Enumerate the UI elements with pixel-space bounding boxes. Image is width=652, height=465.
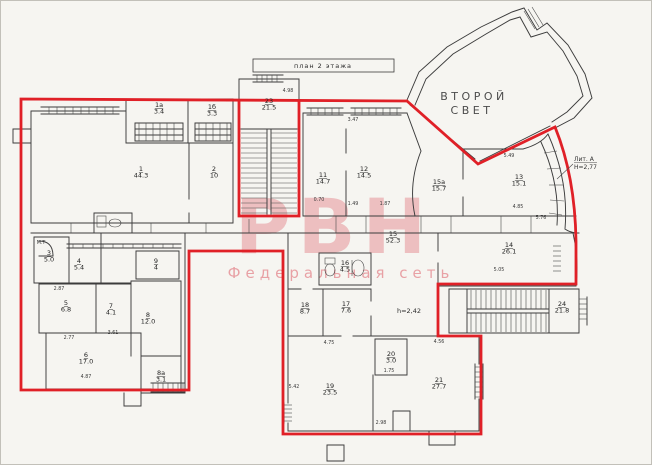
dimension-label: 1.75 <box>384 368 395 374</box>
room-label-5: 56.8 <box>61 299 71 313</box>
dimension-label: 1.87 <box>380 201 391 207</box>
dimension-label: М.Т <box>37 240 46 246</box>
plan-title-box: план 2 этажа <box>253 59 394 72</box>
atrium-fan-walls <box>407 8 592 128</box>
dimension-label: 3.61 <box>108 330 119 336</box>
dimension-label: 1.49 <box>348 201 359 207</box>
room-label-9: 94 <box>154 257 158 271</box>
hatch-line <box>532 7 543 25</box>
dimension-label: 0.70 <box>314 197 325 203</box>
room-label-1: 144.3 <box>134 165 148 179</box>
room-label-19: 1923.5 <box>323 382 337 396</box>
dimension-label: 4.87 <box>81 374 92 380</box>
plan-title: план 2 этажа <box>294 62 352 70</box>
watermark-brand: РВН <box>235 182 433 271</box>
dimension-label: 5.76 <box>536 215 547 221</box>
room-label-16: 164.5 <box>340 259 350 273</box>
room-label-7: 74.1 <box>106 302 116 316</box>
dimension-label: 5.05 <box>494 267 505 273</box>
room-label-4: 45.4 <box>74 257 84 271</box>
dimension-label: 4.75 <box>324 340 335 346</box>
floor-plan-scan: РВН Федеральная сеть план 2 этажа <box>0 0 652 465</box>
liter-height: Н=2,77 <box>574 164 597 171</box>
ceiling-height-note: h=2,42 <box>397 307 421 315</box>
room-label-17: 177.6 <box>341 300 351 314</box>
room-label-11: 1114.7 <box>316 171 330 185</box>
room-label-13: 1315.1 <box>512 173 526 187</box>
room-label-8а: 8а3.1 <box>156 369 166 383</box>
hatch-line <box>547 168 561 169</box>
room-label-1а: 1а3.4 <box>154 101 164 115</box>
dimension-label: 4.56 <box>434 339 445 345</box>
room-label-2: 210 <box>210 165 218 179</box>
room-label-6: 617.0 <box>79 351 93 365</box>
second-light-line2: СВЕТ <box>451 104 494 117</box>
room-label-24: 2421.8 <box>555 300 569 314</box>
room-label-14: 1426.1 <box>502 241 516 255</box>
room-label-12: 1214.5 <box>357 165 371 179</box>
room-label-20: 203.0 <box>386 350 396 364</box>
dimension-label: 5.42 <box>289 384 300 390</box>
room-label-21: 2127.7 <box>432 376 446 390</box>
dimension-label: 5.49 <box>504 153 515 159</box>
dimension-label: 2.77 <box>64 335 75 341</box>
room-label-1б: 1б3.3 <box>207 103 217 117</box>
dimension-label: 3.47 <box>348 117 359 123</box>
room-label-15а: 15а15.7 <box>432 178 446 192</box>
room-label-8: 812.0 <box>141 311 155 325</box>
dimension-label: 4.98 <box>283 88 294 94</box>
floor-plan-canvas: РВН Федеральная сеть план 2 этажа <box>1 1 652 465</box>
dimension-label: 2.98 <box>376 420 387 426</box>
dimension-label: 4.85 <box>513 204 524 210</box>
room-label-18: 188.7 <box>300 301 310 315</box>
wc-fixtures-icon <box>97 216 121 227</box>
second-light-line1: ВТОРОЙ <box>440 90 507 103</box>
dimension-label: 2.87 <box>54 286 65 292</box>
liter-label: Лит. А <box>574 156 595 163</box>
hatch-line <box>549 213 562 215</box>
